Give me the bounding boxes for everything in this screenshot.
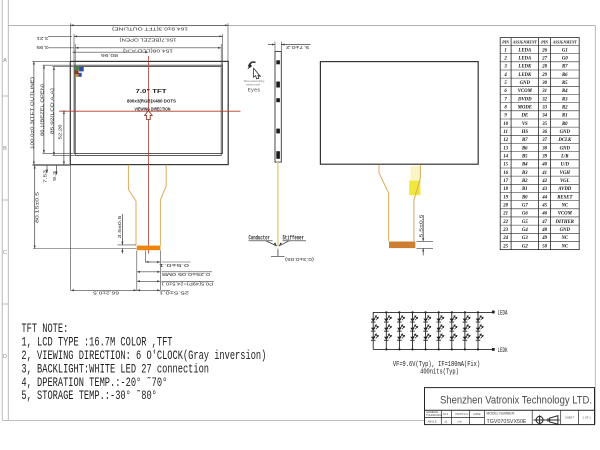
svg-text:5.7±0.2: 5.7±0.2: [285, 45, 309, 50]
svg-text:mm: mm: [458, 420, 463, 423]
svg-text:DITHER: DITHER: [555, 220, 575, 225]
svg-text:12: 12: [503, 138, 508, 143]
svg-text:22: 22: [502, 220, 508, 225]
svg-text:3.21: 3.21: [36, 36, 49, 41]
svg-text:2: 2: [503, 57, 507, 62]
svg-text:5, STORAGE TEMP.:-30° ˜80°: 5, STORAGE TEMP.:-30° ˜80°: [21, 390, 156, 404]
svg-text:RESET: RESET: [557, 195, 573, 200]
svg-text:B7: B7: [521, 138, 528, 143]
svg-text:1 OF 1: 1 OF 1: [583, 416, 592, 420]
svg-text:26: 26: [541, 48, 547, 53]
svg-text:3, BACKLIGHT:WHITE LED 27 conn: 3, BACKLIGHT:WHITE LED 27 connection: [21, 363, 209, 377]
svg-text:LEDK: LEDK: [498, 347, 509, 354]
svg-text:24: 24: [502, 236, 508, 241]
svg-text:29: 29: [541, 73, 547, 78]
svg-text:66.2±0.5: 66.2±0.5: [92, 291, 119, 296]
svg-text:86.1(BEZEL OPEN): 86.1(BEZEL OPEN): [39, 83, 44, 136]
svg-text:VGL: VGL: [560, 179, 570, 184]
svg-text:34: 34: [541, 114, 547, 119]
svg-text:(0.3±0.05): (0.3±0.05): [284, 257, 314, 262]
svg-text:23: 23: [502, 228, 508, 233]
svg-text:154.08(LCD A.A): 154.08(LCD A.A): [122, 49, 173, 54]
svg-text:41: 41: [541, 171, 547, 176]
svg-text:When assembling: When assembling: [244, 79, 265, 83]
svg-text:20: 20: [502, 204, 508, 209]
svg-text:42: 42: [541, 179, 547, 184]
svg-text:ASSIGNMENT: ASSIGNMENT: [552, 39, 577, 44]
svg-text:UNITS:mm: UNITS:mm: [455, 412, 469, 416]
svg-text:R0: R0: [562, 122, 568, 127]
svg-text:P0.5(49P)=24.5±0.1: P0.5(49P)=24.5±0.1: [160, 281, 213, 286]
svg-text:0.25±0.05 0M8: 0.25±0.05 0M8: [161, 272, 210, 277]
svg-text:2, VIEWING DIRECTION: 6 O'CLOC: 2, VIEWING DIRECTION: 6 O'CLOCK(Gray inv…: [21, 350, 266, 364]
svg-text:27: 27: [541, 57, 547, 62]
svg-text:U/D: U/D: [561, 163, 570, 168]
svg-text:1, LCD TYPE :16.7M COLOR ,TFT: 1, LCD TYPE :16.7M COLOR ,TFT: [21, 336, 173, 350]
svg-text:DATE:: DATE:: [474, 412, 482, 416]
svg-text:17: 17: [503, 179, 508, 184]
svg-text:5: 5: [504, 81, 507, 86]
svg-text:11: 11: [503, 130, 508, 135]
svg-text:DCLK: DCLK: [557, 138, 572, 143]
svg-text:8: 8: [504, 106, 507, 111]
svg-text:5.5±0.5: 5.5±0.5: [419, 213, 424, 237]
svg-text:19: 19: [503, 195, 508, 200]
svg-text:32: 32: [541, 97, 547, 102]
svg-text:MODE: MODE: [517, 106, 532, 111]
svg-text:B5: B5: [521, 155, 528, 160]
svg-text:13: 13: [503, 146, 508, 151]
svg-text:DE: DE: [520, 114, 528, 119]
svg-text:DVDD: DVDD: [517, 97, 532, 102]
svg-text:800x3(RGB)X480 DOTS: 800x3(RGB)X480 DOTS: [127, 98, 176, 103]
svg-text:400nits(Typ): 400nits(Typ): [420, 368, 459, 376]
svg-text:LEDA: LEDA: [517, 48, 531, 53]
svg-text:100.0±0.3(TFT OUTLINE): 100.0±0.3(TFT OUTLINE): [29, 76, 34, 149]
svg-text:TGV070SVX50E: TGV070SVX50E: [487, 419, 527, 425]
svg-text:7.0" TFT: 7.0" TFT: [136, 89, 168, 95]
svg-text:28: 28: [541, 65, 547, 70]
svg-text:VCOM: VCOM: [518, 89, 533, 94]
svg-text:VIEWING DIRECTION: VIEWING DIRECTION: [135, 107, 171, 112]
svg-text:18: 18: [503, 187, 508, 192]
svg-text:B4: B4: [521, 163, 528, 168]
svg-text:Shenzhen Vatronix Technology L: Shenzhen Vatronix Technology LTD.: [440, 395, 592, 407]
svg-text:R1: R1: [562, 114, 568, 119]
svg-text:Eyes: Eyes: [248, 88, 260, 94]
svg-text:45: 45: [541, 204, 547, 209]
svg-text:49: 49: [541, 236, 547, 241]
svg-text:PIN: PIN: [502, 39, 510, 44]
svg-text:VGH: VGH: [560, 171, 571, 176]
svg-text:SHEET: SHEET: [565, 416, 574, 420]
svg-text:10: 10: [503, 122, 508, 127]
svg-text:164.9±0.3(TFT OUTLINE): 164.9±0.3(TFT OUTLINE): [111, 26, 188, 31]
svg-text:G6: G6: [522, 212, 528, 217]
svg-text:21: 21: [502, 212, 508, 217]
svg-text:R5: R5: [562, 81, 568, 86]
svg-text:80.96: 80.96: [100, 53, 118, 58]
svg-text:GND: GND: [560, 228, 571, 233]
svg-text:3.5±0.5: 3.5±0.5: [117, 214, 122, 238]
svg-text:7: 7: [504, 97, 507, 102]
svg-text:30: 30: [541, 81, 547, 86]
svg-text:VCOM: VCOM: [558, 212, 573, 217]
svg-text:AVDD: AVDD: [557, 187, 572, 192]
svg-text:37: 37: [541, 138, 547, 143]
svg-text:7.53: 7.53: [42, 169, 47, 183]
svg-text:35: 35: [541, 122, 547, 127]
svg-text:G3: G3: [522, 236, 528, 241]
svg-text:G2: G2: [522, 244, 528, 249]
svg-text:R4: R4: [562, 89, 568, 94]
svg-text:G7: G7: [522, 204, 528, 209]
svg-text:R2: R2: [562, 106, 568, 111]
svg-text:31: 31: [541, 89, 547, 94]
svg-text:GND: GND: [520, 81, 531, 86]
svg-text:25.5±0.1: 25.5±0.1: [158, 291, 189, 296]
svg-text:38: 38: [541, 146, 547, 151]
svg-text:14: 14: [503, 155, 508, 160]
svg-text:9.3: 9.3: [52, 170, 57, 181]
svg-text:33: 33: [541, 106, 547, 111]
svg-text:85.92(LCD A.A): 85.92(LCD A.A): [49, 87, 54, 134]
svg-text:0.5±0.1: 0.5±0.1: [158, 263, 189, 268]
svg-text:44: 44: [541, 195, 547, 200]
svg-text:MODEL NUMBER:: MODEL NUMBER:: [487, 412, 516, 416]
svg-text:A: A: [3, 58, 7, 64]
svg-text:R7: R7: [562, 65, 568, 70]
svg-text:1: 1: [504, 48, 506, 53]
svg-text:G1: G1: [562, 48, 568, 53]
svg-text:LEDA: LEDA: [498, 310, 509, 317]
svg-text:GND: GND: [560, 146, 571, 151]
svg-text:B1: B1: [521, 187, 528, 192]
svg-text:C: C: [3, 250, 7, 256]
svg-text:36: 36: [541, 130, 547, 135]
svg-text:G4: G4: [522, 228, 528, 233]
svg-text:NC: NC: [560, 236, 568, 241]
svg-text:80.15±0.5: 80.15±0.5: [35, 191, 40, 223]
svg-text:6: 6: [504, 89, 507, 94]
svg-text:4, DPERATION TEMP.:-20° ˜70°: 4, DPERATION TEMP.:-20° ˜70°: [21, 376, 167, 390]
svg-text:39: 39: [541, 155, 547, 160]
svg-text:±0.3: ±0.3: [443, 412, 449, 416]
svg-text:VS: VS: [522, 122, 528, 127]
svg-text:9: 9: [504, 114, 507, 119]
svg-text:4: 4: [503, 73, 507, 78]
svg-text:15: 15: [503, 163, 508, 168]
svg-text:43: 43: [541, 187, 547, 192]
svg-text:16: 16: [503, 171, 508, 176]
svg-text:±1: ±1: [445, 419, 448, 423]
svg-text:52.26: 52.26: [57, 124, 62, 140]
svg-text:3.95: 3.95: [36, 45, 49, 50]
svg-text:R3: R3: [562, 97, 568, 102]
svg-text:G5: G5: [522, 220, 528, 225]
svg-text:GND: GND: [560, 130, 571, 135]
svg-text:viewing side: viewing side: [246, 83, 261, 87]
svg-text:TOLERANCE: TOLERANCE: [426, 413, 443, 417]
svg-text:3: 3: [503, 65, 507, 70]
svg-text:TFT NOTE:: TFT NOTE:: [21, 323, 68, 337]
svg-text:L/R: L/R: [560, 155, 569, 160]
svg-text:25: 25: [502, 244, 508, 249]
svg-text:G0: G0: [562, 57, 568, 62]
svg-text:LEDK: LEDK: [517, 73, 532, 78]
svg-text:B: B: [3, 146, 7, 152]
svg-text:B2: B2: [521, 179, 528, 184]
svg-text:NC: NC: [560, 204, 568, 209]
svg-text:LEDA: LEDA: [517, 57, 531, 62]
svg-text:NC: NC: [560, 244, 568, 249]
svg-text:B6: B6: [521, 146, 528, 151]
svg-text:LEDK: LEDK: [517, 65, 532, 70]
svg-text:PIN: PIN: [541, 39, 549, 44]
svg-text:47: 47: [541, 220, 547, 225]
svg-text:48: 48: [541, 228, 547, 233]
svg-text:ANGLE: ANGLE: [428, 419, 437, 423]
svg-text:40: 40: [541, 163, 547, 168]
svg-text:50: 50: [542, 244, 547, 249]
svg-text:B3: B3: [521, 171, 528, 176]
svg-text:D: D: [3, 354, 7, 360]
svg-text:46: 46: [541, 212, 547, 217]
svg-text:HS: HS: [521, 130, 529, 135]
svg-text:R6: R6: [562, 73, 568, 78]
svg-text:156.7(BEZEL OPEN): 156.7(BEZEL OPEN): [119, 37, 177, 42]
svg-text:ASSIGNMENT: ASSIGNMENT: [512, 39, 537, 44]
svg-text:B0: B0: [521, 195, 528, 200]
